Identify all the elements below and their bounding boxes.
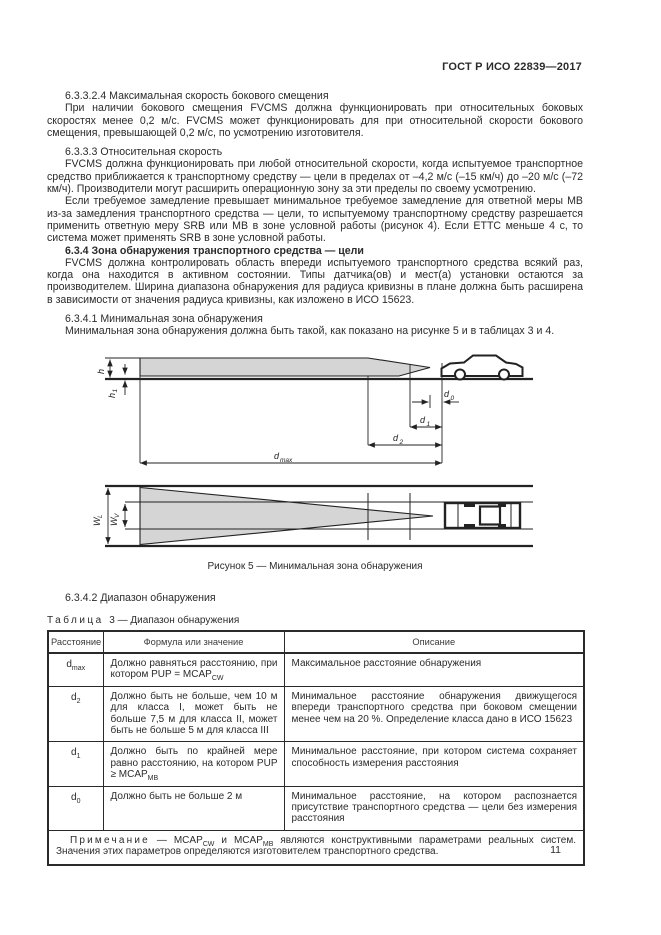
paragraph: FVCMS должна контролировать область впер… <box>47 257 583 306</box>
dimension-label-d1-sub: 1 <box>427 421 431 428</box>
table-row-d1: d1 Должно быть по крайней мере равно рас… <box>48 742 584 786</box>
page-content: 6.3.3.2.4 Максимальная скорость бокового… <box>47 90 583 866</box>
dimension-label-d2-sub: 2 <box>399 439 404 446</box>
figure-5: h h 1 d <box>47 350 583 572</box>
table-row-d0: d0 Должно быть не больше 2 м Минимальное… <box>48 786 584 830</box>
paragraph: Если требуемое замедление превышает мини… <box>47 195 583 244</box>
figure-caption: Рисунок 5 — Минимальная зона обнаружения <box>47 561 583 572</box>
col-header-distance: Расстояние <box>48 631 103 653</box>
formula-cell: Должно быть не больше 2 м <box>103 786 284 830</box>
target-vehicle-side-icon <box>442 355 523 379</box>
formula-cell: Должно равняться расстоянию, при котором… <box>103 653 284 686</box>
paragraph: Минимальная зона обнаружения должна быть… <box>47 325 583 337</box>
table-header-row: Расстояние Формула или значение Описание <box>48 631 584 653</box>
table-note-row: Примечание — MCAPCW и MCAPMB являются ко… <box>48 830 584 864</box>
table-row-dmax: dmax Должно равняться расстоянию, при ко… <box>48 653 584 686</box>
col-header-formula: Формула или значение <box>103 631 284 653</box>
description-cell: Минимальное расстояние, при котором сист… <box>284 742 584 786</box>
detection-zone-plan <box>140 487 433 544</box>
dimension-label-wl-sub: L <box>97 514 104 518</box>
dimension-label-d0: d <box>444 389 450 399</box>
dimension-label-h1: h <box>107 393 117 398</box>
distance-symbol: dmax <box>48 653 103 686</box>
col-header-description: Описание <box>284 631 584 653</box>
table-note: Примечание — MCAPCW и MCAPMB являются ко… <box>48 830 584 864</box>
clause-heading-6333: 6.3.3.3 Относительная скорость <box>47 146 583 158</box>
dimension-label-d2: d <box>393 433 399 443</box>
description-cell: Минимальное расстояние обнаружения движу… <box>284 686 584 742</box>
formula-cell: Должно быть по крайней мере равно рассто… <box>103 742 284 786</box>
distance-symbol: d1 <box>48 742 103 786</box>
clause-heading-634: 6.3.4 Зона обнаружения транспортного сре… <box>47 245 583 257</box>
clause-heading-6342: 6.3.4.2 Диапазон обнаружения <box>47 592 583 604</box>
paragraph: При наличии бокового смещения FVCMS долж… <box>47 102 583 139</box>
paragraph: FVCMS должна функционировать при любой о… <box>47 158 583 195</box>
page-number: 11 <box>550 844 561 856</box>
figure-5-diagram: h h 1 d <box>47 350 583 556</box>
dimension-label-h1-sub: 1 <box>112 388 119 392</box>
detection-range-table: Расстояние Формула или значение Описание… <box>47 630 585 866</box>
target-vehicle-top-icon <box>445 502 520 529</box>
clause-heading-63324: 6.3.3.2.4 Максимальная скорость бокового… <box>47 90 583 102</box>
description-cell: Максимальное расстояние обнаружения <box>284 653 584 686</box>
table-row-d2: d2 Должно быть не больше, чем 10 м для к… <box>48 686 584 742</box>
distance-symbol: d2 <box>48 686 103 742</box>
dimension-label-dmax-sub: max <box>280 457 293 464</box>
description-cell: Минимальное расстояние, на котором распо… <box>284 786 584 830</box>
clause-heading-6341: 6.3.4.1 Минимальная зона обнаружения <box>47 313 583 325</box>
plan-view-diagram: W L W V <box>92 486 533 546</box>
detection-zone-side <box>140 358 430 376</box>
dimension-label-wv-sub: V <box>114 513 121 518</box>
table-3-label: Таблица 3 — Диапазон обнаружения <box>47 615 583 626</box>
doc-code-header: ГОСТ Р ИСО 22839—2017 <box>442 61 582 73</box>
dimension-label-d0-sub: 0 <box>451 395 455 402</box>
dimension-label-h: h <box>96 369 106 374</box>
dimension-label-d1: d <box>420 415 426 425</box>
formula-cell: Должно быть не больше, чем 10 м для клас… <box>103 686 284 742</box>
side-view-diagram: h h 1 d <box>96 355 533 464</box>
document-page: ГОСТ Р ИСО 22839—2017 6.3.3.2.4 Максимал… <box>0 0 661 935</box>
distance-symbol: d0 <box>48 786 103 830</box>
